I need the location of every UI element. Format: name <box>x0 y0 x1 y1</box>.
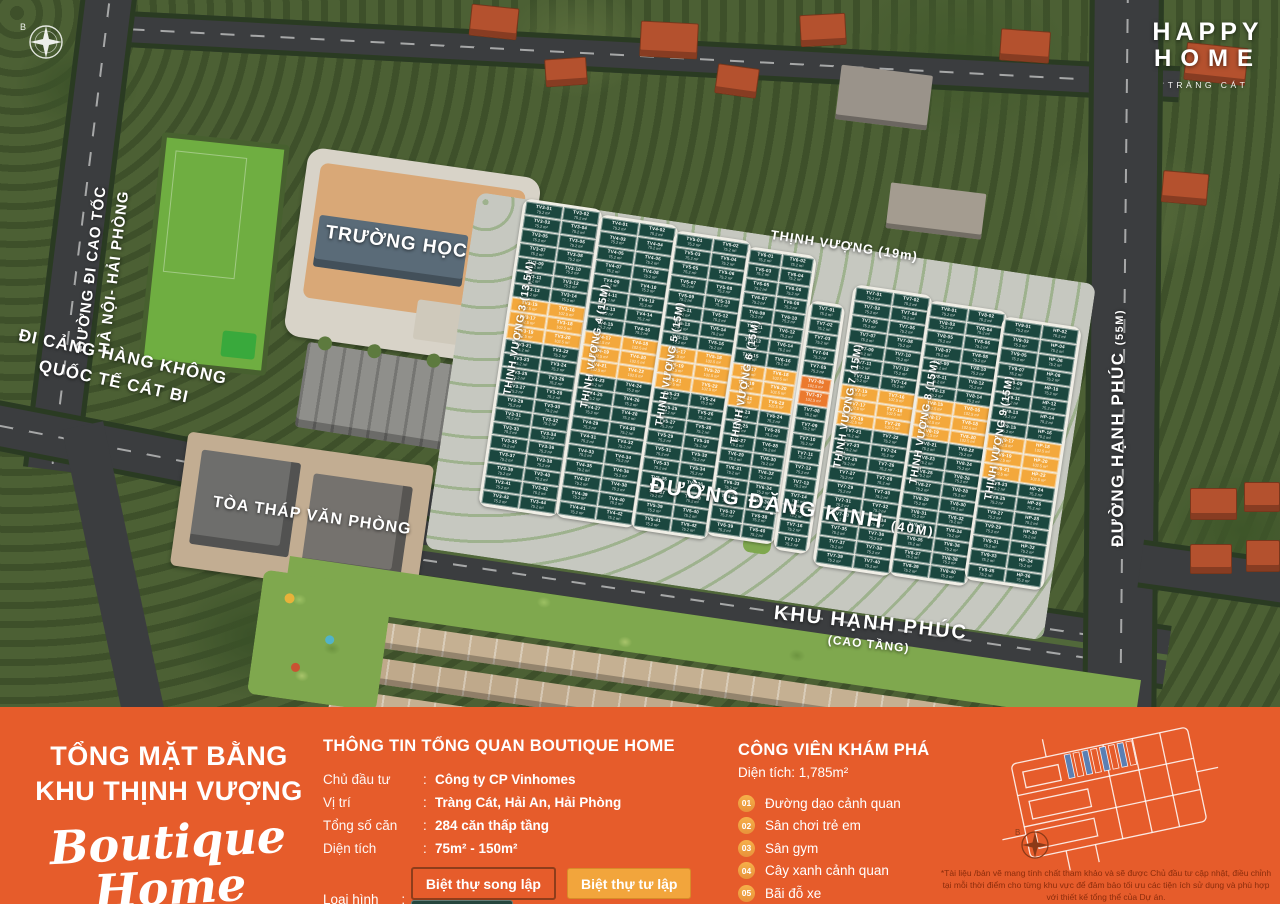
info-row: Tổng số căn:284 căn thấp tầng <box>323 814 728 837</box>
logo-line2: HOME <box>1146 45 1270 73</box>
info-row: Vị trí:Tràng Cát, Hải An, Hải Phòng <box>323 791 728 814</box>
park-item: 02Sân chơi trẻ em <box>738 815 973 838</box>
plan-title-line1: TỔNG MẶT BẰNG <box>28 739 310 774</box>
villa-icon <box>1190 488 1237 520</box>
park-item-number-badge: 05 <box>738 885 755 902</box>
mini-sitemap: B <box>985 721 1229 871</box>
villa-icon <box>1190 544 1232 574</box>
logo-subtitle: TRÀNG CÁT <box>1146 80 1270 90</box>
type-label: Loại hình <box>323 892 401 904</box>
warehouse-icon <box>835 65 933 131</box>
villa-icon <box>1246 540 1280 572</box>
boutique-home-script: Boutique Home <box>26 812 312 904</box>
park-area: Diện tích: 1,785m² <box>738 765 973 780</box>
park-item-number-badge: 04 <box>738 862 755 879</box>
sports-field <box>138 132 290 376</box>
minimap-compass-icon: B <box>1015 828 1048 858</box>
compass-icon: B <box>16 16 68 64</box>
villa-icon <box>1244 482 1280 512</box>
park-item: 01Đường dạo cảnh quan <box>738 792 973 815</box>
happy-home-logo: HAPPY HOME TRÀNG CÁT <box>1146 18 1270 90</box>
plan-title-line2: KHU THỊNH VƯỢNG <box>28 774 310 809</box>
type-legend-row: Loại hình : Biệt thự song lậpBiệt thự tư… <box>323 867 728 904</box>
masterplan-poster: TRƯỜNG HỌC TÒA THÁP VĂN PHÒNG TV3-0175.2… <box>0 0 1280 904</box>
info-rows: Chủ đầu tư:Công ty CP VinhomesVị trí:Trà… <box>323 768 728 860</box>
svg-text:B: B <box>20 22 26 32</box>
plan-title: TỔNG MẶT BẰNG KHU THỊNH VƯỢNG Boutique H… <box>28 739 310 904</box>
road-label-hanh-phuc: ĐƯỜNG HẠNH PHÚC (55M) <box>1108 278 1128 578</box>
park-title: CÔNG VIÊN KHÁM PHÁ <box>738 741 973 760</box>
type-chips: Biệt thự song lậpBiệt thự tư lậpNhà liền… <box>411 867 728 904</box>
house-icon <box>468 4 519 41</box>
type-chip: Biệt thự tư lập <box>567 868 692 899</box>
info-bar: TỔNG MẶT BẰNG KHU THỊNH VƯỢNG Boutique H… <box>0 707 1280 904</box>
project-info-section: THÔNG TIN TỔNG QUAN BOUTIQUE HOME Chủ đầ… <box>323 737 728 904</box>
west-park <box>247 570 393 707</box>
logo-line1: HAPPY <box>1146 18 1270 47</box>
house-icon <box>544 57 588 88</box>
park-item: 03Sân gym <box>738 837 973 860</box>
svg-text:B: B <box>1015 828 1020 837</box>
house-icon <box>639 21 699 60</box>
type-chip: Biệt thự song lập <box>411 867 556 900</box>
house-icon <box>999 28 1051 63</box>
project-info-title: THÔNG TIN TỔNG QUAN BOUTIQUE HOME <box>323 737 728 756</box>
villa-icon <box>1161 170 1210 206</box>
park-item-number-badge: 01 <box>738 795 755 812</box>
house-icon <box>714 63 760 99</box>
masterplan-map: TRƯỜNG HỌC TÒA THÁP VĂN PHÒNG TV3-0175.2… <box>0 0 1280 707</box>
info-row: Diện tích:75m² - 150m² <box>323 837 728 860</box>
info-row: Chủ đầu tư:Công ty CP Vinhomes <box>323 768 728 791</box>
warehouse-icon <box>886 182 987 239</box>
house-icon <box>799 13 847 47</box>
park-item-number-badge: 02 <box>738 817 755 834</box>
disclaimer-text: *Tài liệu /bản vẽ mang tính chất tham kh… <box>938 868 1274 904</box>
park-item-number-badge: 03 <box>738 840 755 857</box>
type-chip: Nhà liền kề <box>411 900 513 904</box>
